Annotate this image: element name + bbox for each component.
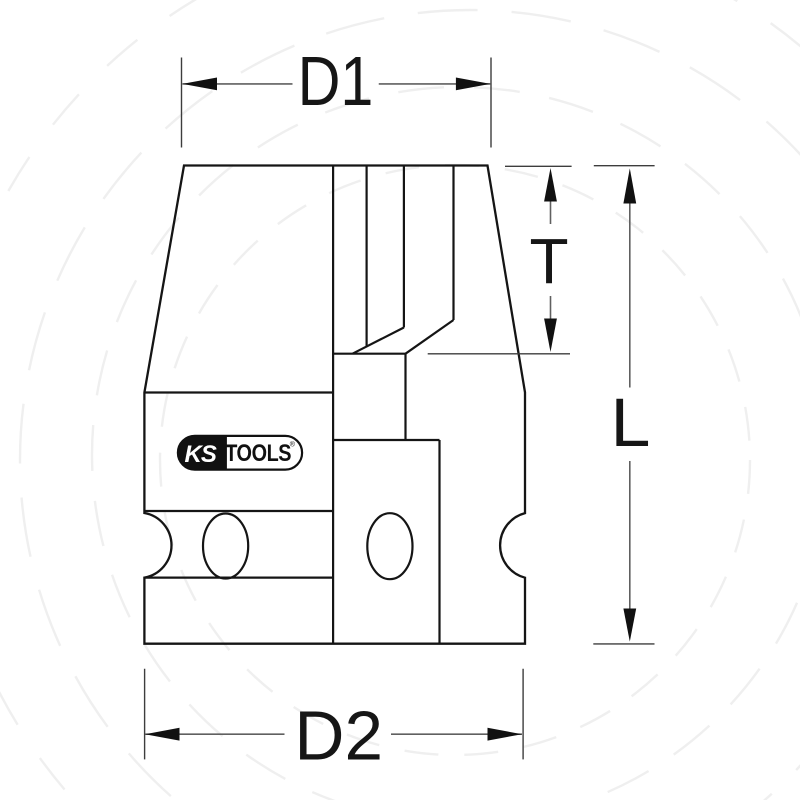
svg-text:L: L <box>611 383 651 460</box>
svg-text:KS: KS <box>185 441 217 468</box>
svg-text:T: T <box>530 225 569 297</box>
svg-text:TOOLS: TOOLS <box>225 439 291 466</box>
svg-text:®: ® <box>290 440 296 448</box>
svg-text:D1: D1 <box>298 42 374 121</box>
svg-text:D2: D2 <box>294 696 383 774</box>
